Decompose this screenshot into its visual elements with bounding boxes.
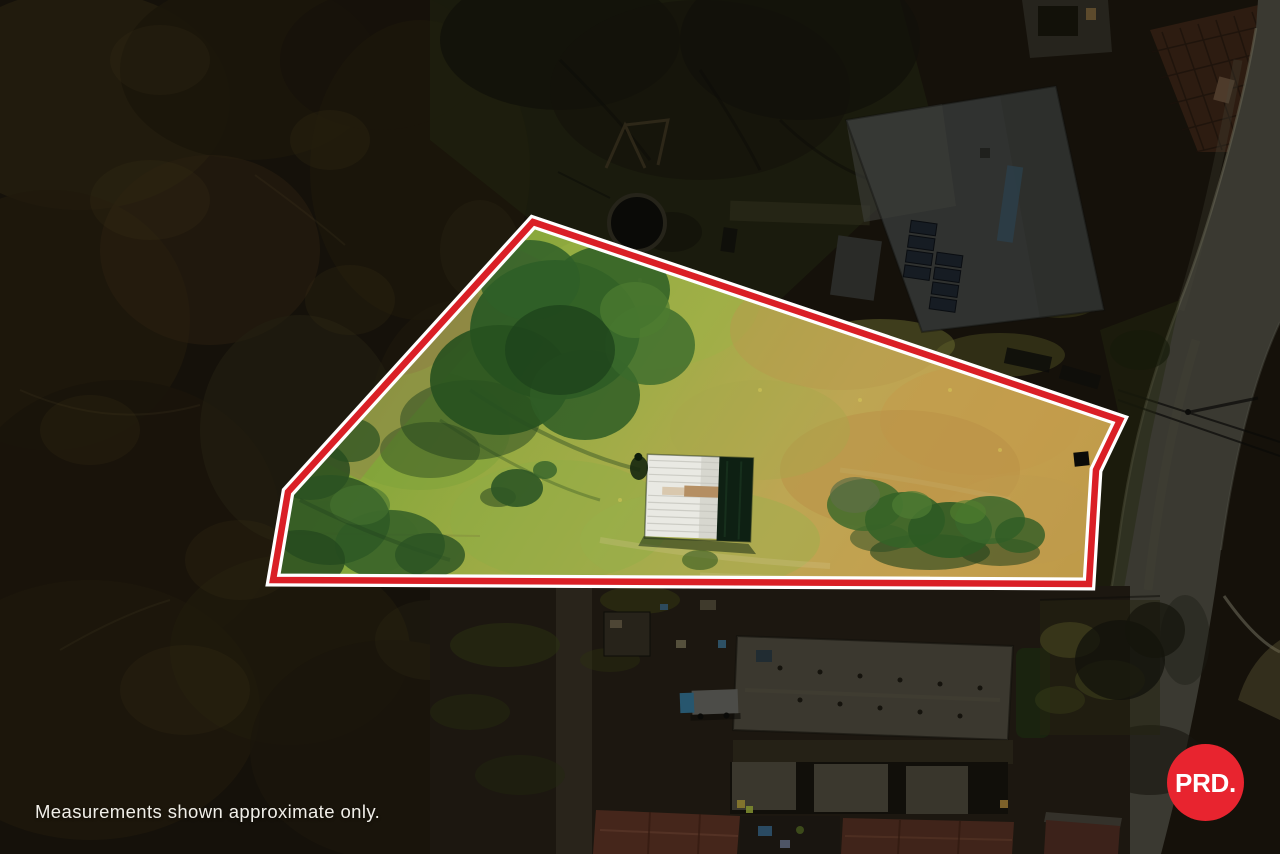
parcel-marker-square	[1073, 451, 1089, 466]
aerial-property-photo: Measurements shown approximate only. PRD…	[0, 0, 1280, 854]
aerial-photo-scene	[0, 0, 1280, 854]
trampoline	[609, 195, 665, 251]
storage-units-row	[730, 762, 1008, 814]
industrial-lots-bottom	[430, 586, 1185, 854]
warehouse-roof	[733, 636, 1013, 740]
driveway	[556, 586, 592, 854]
prd-logo-text: PRD.	[1175, 768, 1236, 798]
shed-rust-patch	[684, 486, 720, 498]
disclaimer-text: Measurements shown approximate only.	[35, 801, 380, 823]
small-shed	[604, 612, 650, 656]
house-deck	[830, 235, 882, 301]
prd-logo: PRD.	[1167, 744, 1244, 821]
